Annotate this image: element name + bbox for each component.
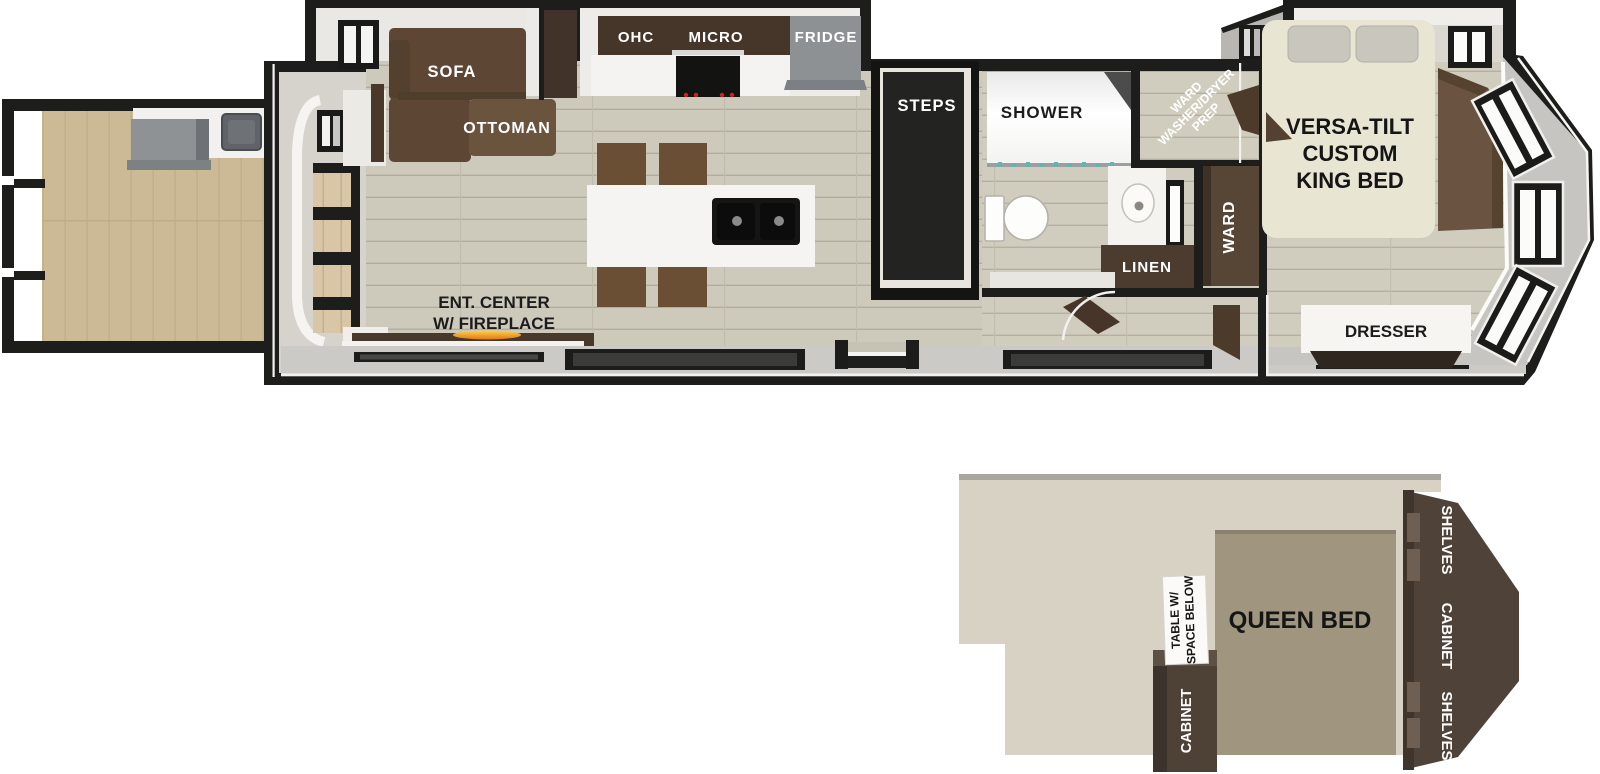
svg-text:MICRO: MICRO [689,29,744,46]
svg-text:SHOWER: SHOWER [1001,103,1084,122]
svg-text:QUEEN BED: QUEEN BED [1229,607,1372,634]
svg-text:OHC: OHC [618,29,654,46]
svg-text:DRESSER: DRESSER [1345,322,1427,341]
svg-text:FRIDGE: FRIDGE [795,29,858,46]
svg-text:LINEN: LINEN [1122,259,1172,276]
svg-text:KING BED: KING BED [1296,168,1404,193]
svg-text:SHELVES: SHELVES [1438,506,1455,575]
svg-text:WARD: WARD [1221,201,1238,254]
svg-text:SOFA: SOFA [428,63,477,81]
svg-text:OTTOMAN: OTTOMAN [463,120,551,137]
svg-text:CABINET: CABINET [1438,603,1455,670]
svg-text:W/ FIREPLACE: W/ FIREPLACE [433,314,555,333]
svg-text:CUSTOM: CUSTOM [1303,141,1398,166]
svg-text:ENT. CENTER: ENT. CENTER [438,293,549,312]
svg-text:SHELVES: SHELVES [1438,692,1455,761]
svg-text:TABLE W/: TABLE W/ [1167,591,1183,649]
svg-text:STEPS: STEPS [897,97,956,115]
svg-text:VERSA-TILT: VERSA-TILT [1286,114,1414,139]
svg-text:CABINET: CABINET [1179,689,1195,754]
